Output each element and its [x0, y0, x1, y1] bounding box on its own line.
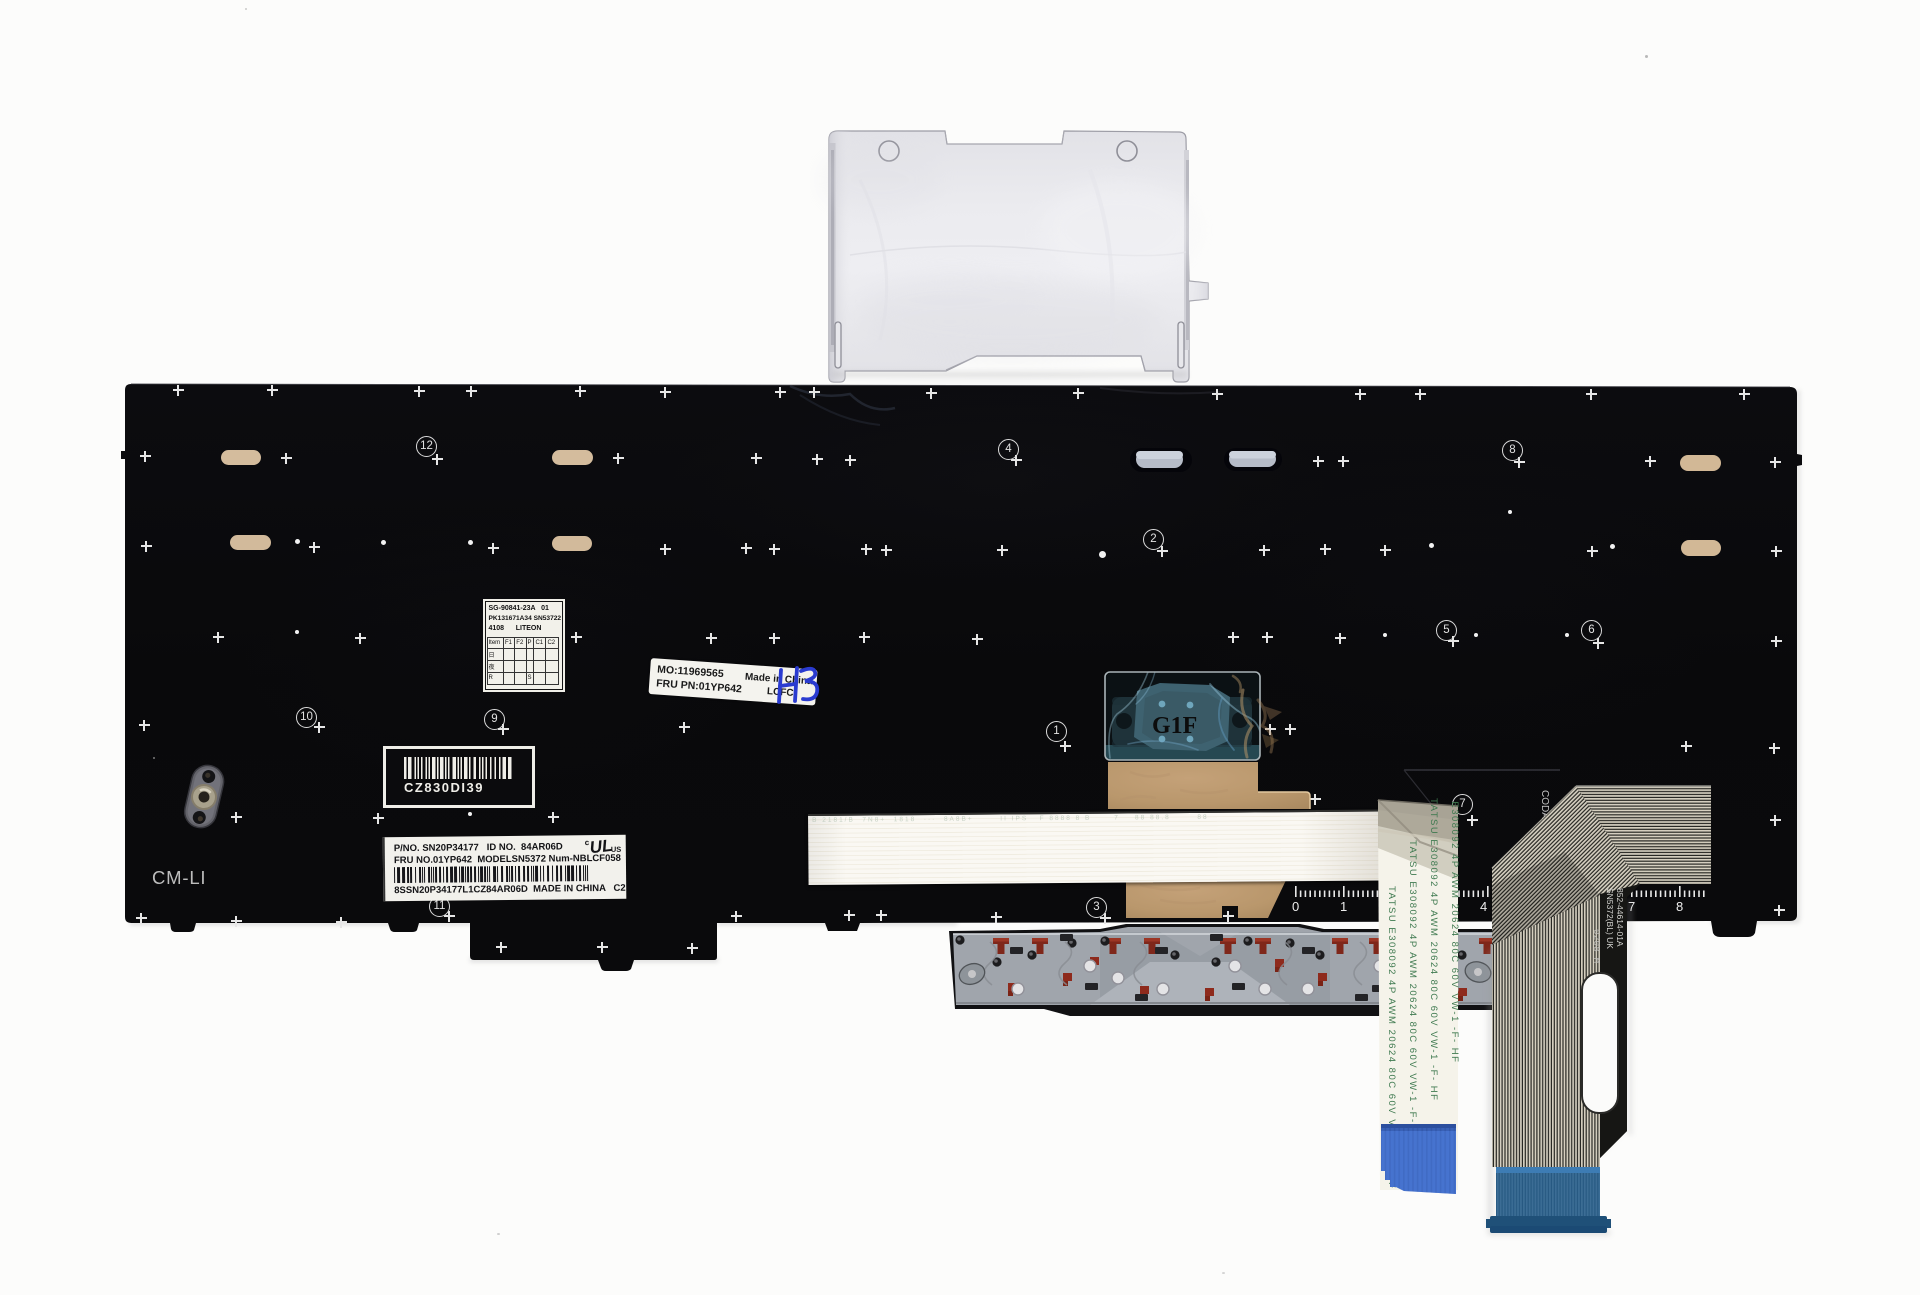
svg-text:1: 1 [1340, 899, 1347, 914]
svg-text:TATSU E308092 4P AWM 20624: TATSU E308092 4P AWM 20624 80C 60V VW-1 … [1428, 798, 1439, 1101]
svg-text:TATSU E308092 4P AWM 20624: TATSU E308092 4P AWM 20624 80C 60V VW-1 … [1407, 840, 1418, 1143]
svg-text:852-44614-01A: 852-44614-01A [1615, 888, 1625, 947]
svg-text:0208 M: 0208 M [1591, 929, 1602, 964]
svg-text:0: 0 [1292, 899, 1299, 914]
svg-text:G1F: G1F [1152, 713, 1197, 739]
svg-text:SN5372(BL) UK: SN5372(BL) UK [1605, 888, 1615, 949]
svg-text:TATSU E308092 4P AWM 20624: TATSU E308092 4P AWM 20624 80C 60V VW-1 … [1449, 796, 1460, 1063]
